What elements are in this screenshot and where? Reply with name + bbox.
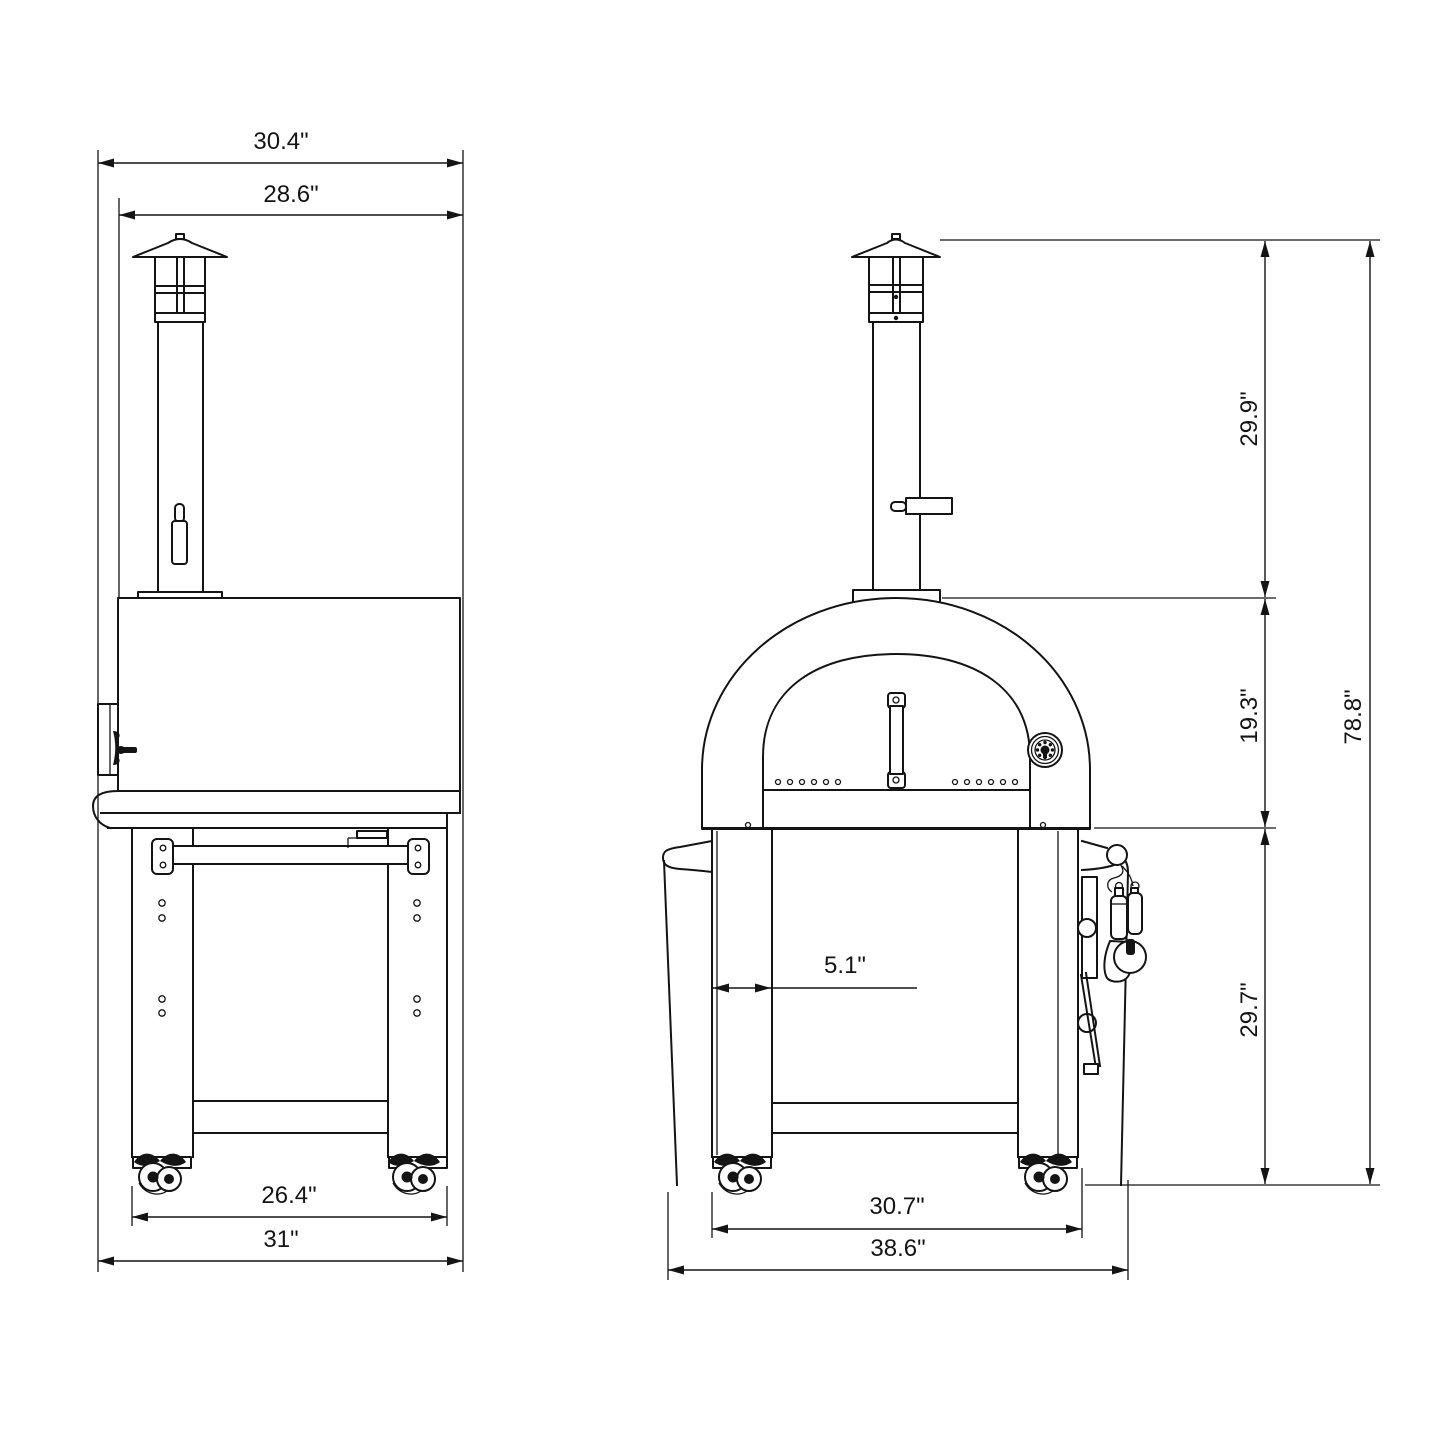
dim-stand-height: 29.7" [1236, 982, 1263, 1037]
dim-base-depth: 31" [263, 1226, 298, 1253]
rail-knob [1078, 919, 1096, 937]
handle-bar-left-bracket [152, 839, 173, 874]
oven-door-handle [888, 693, 905, 788]
thermometer-gauge [1028, 733, 1062, 767]
flue-damper-handle [906, 498, 952, 514]
chimney-flue [873, 322, 920, 590]
side-view: 30.4" 28.6" 26.4" 31" [93, 128, 463, 1272]
dim-overall-height: 78.8" [1340, 689, 1367, 744]
lower-shelf [772, 1103, 1018, 1133]
front-stand [663, 829, 1146, 1194]
side-oven-body [98, 598, 460, 791]
chimney-cap [852, 240, 940, 258]
oven-dome [702, 598, 1090, 829]
dim-chimney-height: 29.9" [1236, 391, 1263, 446]
side-chimney [133, 234, 227, 604]
front-view: 29.9" 19.3" 29.7" 78.8" 5.1" 3 [663, 234, 1380, 1280]
dim-hood-depth: 28.6" [263, 181, 318, 208]
lower-shelf [193, 1101, 388, 1133]
door-handle-rod [121, 747, 137, 753]
flue-damper-knob [175, 504, 184, 522]
tool-handle [1128, 893, 1142, 934]
flue-damper-rod [891, 502, 906, 511]
dim-leg-width: 5.1" [824, 952, 866, 979]
oven-hood [118, 598, 460, 791]
dimension-drawing: 30.4" 28.6" 26.4" 31" [0, 0, 1445, 1445]
dim-overall-width: 38.6" [870, 1235, 925, 1262]
dim-caster-span-width: 30.7" [869, 1193, 924, 1220]
dim-overall-depth: 30.4" [253, 128, 308, 155]
front-chimney [852, 234, 952, 603]
leg-adjustment-holes [159, 900, 420, 1016]
side-handle-bar [173, 846, 408, 864]
chimney-finial [892, 234, 900, 239]
bar-mount-step [357, 831, 387, 838]
chimney-cap [133, 239, 227, 257]
tool-handle [1111, 896, 1127, 939]
left-side-shelf [663, 841, 712, 872]
stand-legs [712, 829, 1078, 1157]
dim-dome-height: 19.3" [1236, 688, 1263, 743]
flue-damper-handle [172, 521, 187, 564]
drawing-canvas: 30.4" 28.6" 26.4" 31" [0, 0, 1445, 1445]
handle-bar-right-bracket [408, 839, 429, 874]
hanging-tools [1104, 864, 1146, 982]
side-stand [132, 813, 447, 1194]
hanger-hook-knob [1107, 845, 1127, 865]
side-table-top [93, 791, 460, 828]
dim-caster-span-depth: 26.4" [261, 1182, 316, 1209]
